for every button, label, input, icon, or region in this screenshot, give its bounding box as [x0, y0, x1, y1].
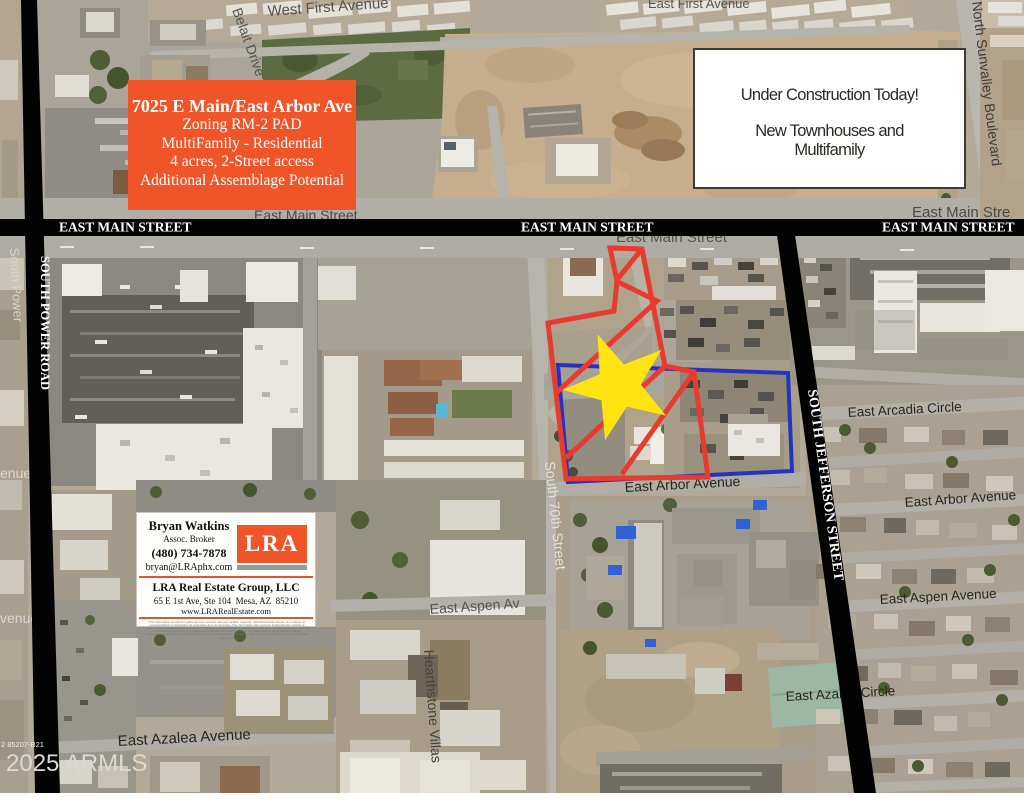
svg-text:East First Avenue: East First Avenue — [648, 0, 750, 11]
svg-text:2 85207-B21: 2 85207-B21 — [1, 740, 44, 749]
svg-text:SOUTH POWER ROAD: SOUTH POWER ROAD — [38, 256, 52, 390]
svg-text:EAST MAIN STREET: EAST MAIN STREET — [59, 220, 192, 235]
svg-text:EAST MAIN STREET: EAST MAIN STREET — [521, 220, 654, 235]
svg-text:East Main Stre: East Main Stre — [912, 204, 1010, 221]
svg-text:2025 ARMLS: 2025 ARMLS — [6, 750, 147, 777]
svg-text:EAST MAIN STREET: EAST MAIN STREET — [882, 220, 1015, 235]
svg-text:enue: enue — [0, 465, 31, 481]
